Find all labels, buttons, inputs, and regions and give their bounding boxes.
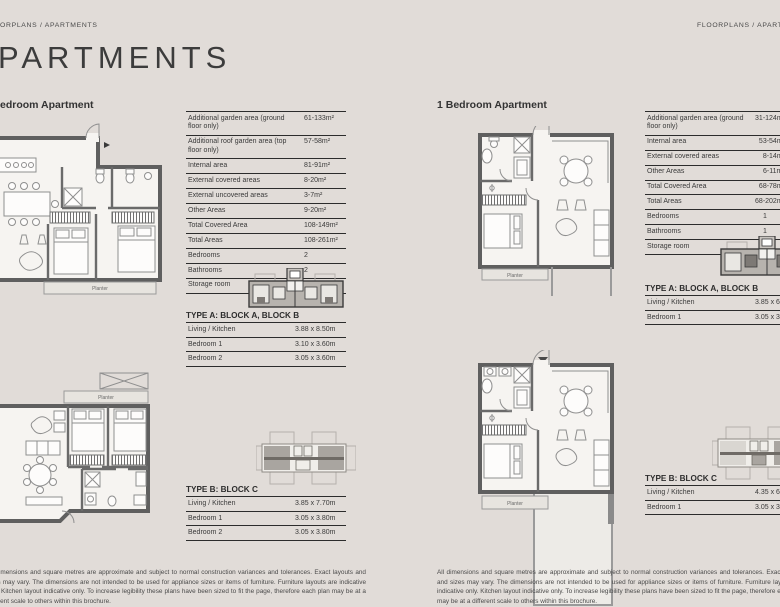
table-row: External uncovered areas3-7m² (186, 188, 346, 203)
sofa (594, 210, 609, 256)
sideboard (26, 497, 62, 505)
type-a-heading: TYPE A: BLOCK A, BLOCK B (186, 311, 299, 320)
tv-unit (54, 423, 65, 432)
brochure-page: ORPLANS / APARTMENTS FLOORPLANS / APARTM… (0, 0, 780, 607)
table-row: External covered areas8-14m² (645, 150, 780, 165)
sofa (594, 440, 609, 486)
planter-label: Planter (507, 273, 523, 279)
shower (85, 472, 100, 487)
sink (134, 495, 146, 505)
wardrobe (112, 455, 146, 465)
floorplan-2br-type-b: Planter (0, 365, 170, 570)
door-opening (86, 133, 99, 142)
table-row: Total Covered Area108-149m² (186, 218, 346, 233)
shower (514, 367, 530, 383)
table-row: Bedroom 13.05 x 3.80m (186, 511, 346, 526)
type-b-heading: TYPE B: BLOCK C (645, 474, 717, 483)
vanity (136, 472, 146, 486)
breadcrumb: FLOORPLANS / APARTMENTS (697, 22, 780, 29)
type-b-heading: TYPE B: BLOCK C (186, 485, 258, 494)
sink (145, 173, 152, 180)
table-row: Living / Kitchen3.85 x 6. (645, 295, 780, 310)
shower (64, 188, 82, 206)
table-row: Additional garden area (ground floor onl… (645, 111, 780, 135)
table-row: Bedroom 13.05 x 3. (645, 500, 780, 515)
toilet (108, 496, 116, 506)
type-a-heading: TYPE A: BLOCK A, BLOCK B (645, 284, 758, 293)
floorplan-1br-type-a: Planter (472, 126, 622, 296)
bed (114, 409, 146, 451)
keyplan-block-ab (243, 268, 348, 310)
wardrobe (112, 212, 154, 223)
bed (484, 444, 522, 478)
type-a-table: Living / Kitchen3.85 x 6. Bedroom 13.05 … (645, 295, 780, 325)
table-row: Additional roof garden area (top floor o… (186, 135, 346, 159)
type-b-table: Living / Kitchen4.35 x 6. Bedroom 13.05 … (645, 485, 780, 515)
keyplan-block-c (712, 425, 780, 480)
keyplan-block-c (256, 430, 356, 485)
wardrobe (482, 195, 526, 205)
table-row: Other Areas6-11m² (645, 165, 780, 180)
disclaimer-text: All dimensions and square metres are app… (437, 568, 780, 606)
table-row: Living / Kitchen3.85 x 7.70m (186, 496, 346, 511)
type-b-table: Living / Kitchen3.85 x 7.70m Bedroom 13.… (186, 496, 346, 541)
table-row: Total Areas68-202m² (645, 194, 780, 209)
planter-label: Planter (92, 286, 108, 292)
north-arrow-icon (104, 142, 110, 148)
table-row: Other Areas9-20m² (186, 203, 346, 218)
basin (482, 149, 492, 163)
floorplan-2br-type-a: Planter (0, 108, 170, 316)
disclaimer-text: All dimensions and square metres are app… (0, 568, 366, 606)
planter-label: Planter (98, 395, 114, 401)
toilet (491, 141, 498, 148)
page-title: PARTMENTS (0, 40, 231, 76)
table-row: Internal area81-91m² (186, 158, 346, 173)
bed (72, 409, 104, 451)
table-row: Bedrooms2 (186, 248, 346, 263)
section-heading-1br: 1 Bedroom Apartment (437, 99, 547, 111)
bed (54, 228, 88, 274)
shower (514, 137, 530, 153)
table-row: Total Areas108-261m² (186, 233, 346, 248)
table-row: Bedroom 23.05 x 3.60m (186, 351, 346, 366)
table-row: Bedroom 23.05 x 3.80m (186, 525, 346, 540)
breadcrumb: ORPLANS / APARTMENTS (0, 22, 98, 29)
table-row: Bedrooms1 (645, 209, 780, 224)
sofa (26, 441, 60, 455)
table-row: Living / Kitchen4.35 x 6. (645, 485, 780, 500)
spec-table-1br: Additional garden area (ground floor onl… (645, 111, 780, 255)
basin (482, 379, 492, 393)
dining-table (560, 386, 592, 416)
table-row: Bedroom 13.05 x 3. (645, 310, 780, 325)
bed (484, 214, 522, 248)
type-a-table: Living / Kitchen3.88 x 8.50m Bedroom 13.… (186, 322, 346, 367)
table-row: Total Covered Area68-78m² (645, 180, 780, 195)
table-row: Living / Kitchen3.88 x 8.50m (186, 322, 346, 337)
spec-table-2br: Additional garden area (ground floor onl… (186, 111, 346, 294)
wardrobe (482, 425, 526, 435)
table-row: External covered areas8-20m² (186, 173, 346, 188)
planter-label: Planter (507, 501, 523, 507)
table-row: Internal area53-54m² (645, 135, 780, 150)
tv-unit (54, 411, 65, 420)
table-row: Additional garden area (ground floor onl… (186, 111, 346, 135)
washer (85, 493, 96, 505)
pergola (100, 373, 148, 389)
wardrobe (50, 212, 90, 223)
bed (118, 226, 155, 272)
keyplan-block-ab (715, 236, 780, 278)
table-row: Bedroom 13.10 x 3.60m (186, 337, 346, 352)
wardrobe (70, 455, 104, 465)
kitchen-island (0, 158, 36, 172)
dining-table (560, 156, 592, 186)
